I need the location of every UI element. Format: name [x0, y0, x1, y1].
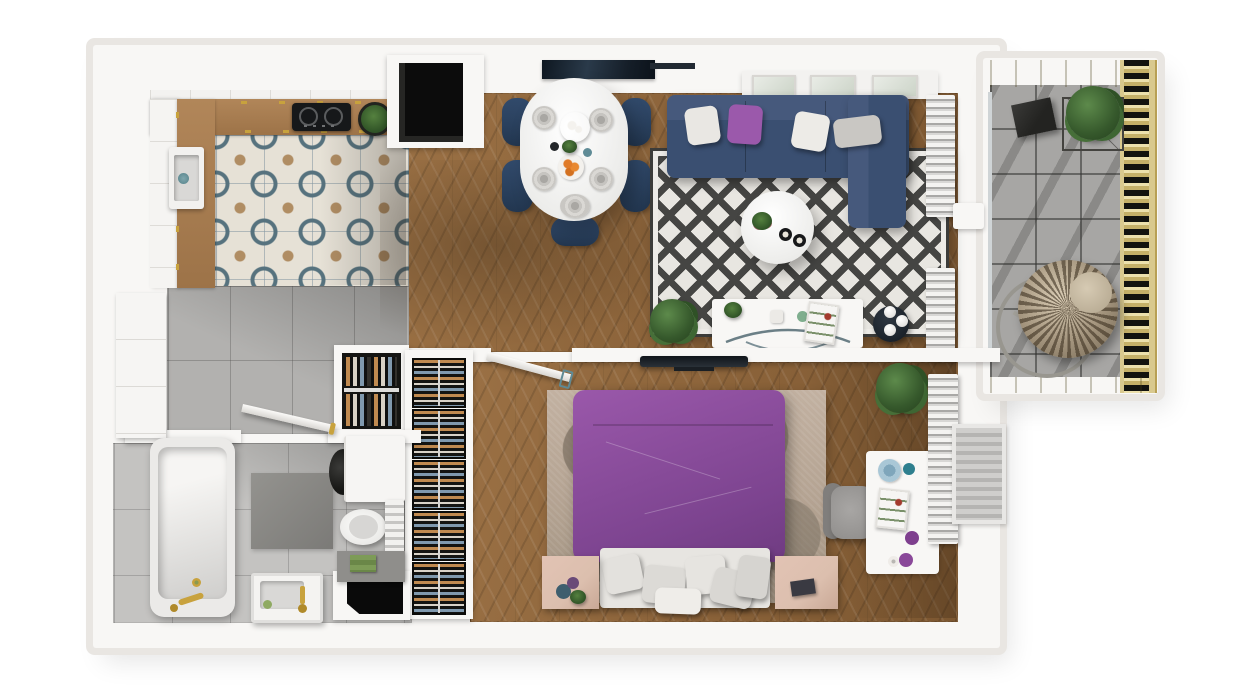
- bedroom-tv-stand: [674, 367, 714, 371]
- sofa-pillow-white: [790, 110, 831, 153]
- closet-clothes-lower: [346, 394, 397, 426]
- bed-pillow: [601, 552, 646, 595]
- kitchen-upper-cabinet-strip: [150, 90, 387, 99]
- sofa-pillow-white: [684, 105, 722, 146]
- fruit-bowl: [558, 154, 584, 180]
- bedroom-plant: [876, 363, 924, 413]
- entry-glass-panel: [542, 60, 655, 79]
- bathtub: [150, 438, 235, 617]
- bathtub-drain: [192, 578, 201, 587]
- desk-teal-dot: [903, 463, 915, 475]
- sideboard-magazine: [803, 301, 839, 345]
- wardrobe-rail: [438, 360, 440, 406]
- place-setting: [532, 167, 556, 191]
- wardrobe-bay: [412, 358, 466, 408]
- duvet-fold: [645, 487, 752, 515]
- closet-rail: [344, 388, 399, 392]
- desk-purple-dot: [899, 553, 913, 567]
- cooktop-burner: [324, 107, 343, 126]
- nightstand-decor-disc: [567, 577, 579, 589]
- table-cup: [583, 148, 592, 157]
- soap-dish: [263, 600, 272, 609]
- bed-pillow: [734, 554, 772, 600]
- toilet: [340, 509, 386, 545]
- sofa-pillow-gray: [832, 114, 882, 149]
- wardrobe-bay: [412, 511, 466, 561]
- place-setting: [589, 108, 613, 132]
- side-table-sphere: [884, 324, 896, 336]
- bedroom-wall-tv: [640, 356, 748, 367]
- gold-tray: [560, 112, 590, 142]
- washing-machine: [344, 436, 405, 502]
- cooktop-burner: [299, 107, 318, 126]
- balcony-glass-line: [988, 92, 992, 350]
- side-table-sphere: [896, 315, 908, 327]
- nightstand-plant: [570, 590, 586, 604]
- desk-cup: [888, 556, 899, 567]
- living-blinds-lower: [926, 268, 955, 360]
- living-blinds-upper: [926, 95, 955, 217]
- balcony-door-divider: [953, 203, 984, 229]
- wardrobe-rail: [438, 411, 440, 457]
- place-setting: [589, 167, 613, 191]
- coffee-table-flowers: [752, 212, 772, 230]
- kitchen-floor: [215, 135, 409, 288]
- sofa-chaise: [848, 95, 906, 228]
- sink-drain: [178, 173, 189, 184]
- green-towels: [350, 555, 376, 572]
- vanity-faucet: [300, 586, 305, 604]
- desk-purple-dot: [905, 531, 919, 545]
- hanging-egg-chair: [1018, 260, 1118, 358]
- entry-panel-frame: [650, 63, 695, 69]
- table-sprig: [562, 140, 577, 153]
- wardrobe-rail: [438, 513, 440, 559]
- side-table-sphere: [884, 306, 896, 318]
- bed-pillow: [655, 587, 702, 615]
- cooktop: [292, 103, 351, 131]
- sofa-pillow-purple: [727, 104, 764, 145]
- bath-mat: [251, 473, 333, 549]
- bathroom-tall-cabinet: [116, 293, 166, 438]
- place-setting: [560, 194, 590, 218]
- duvet-fold: [593, 424, 773, 426]
- wardrobe-bay: [412, 460, 466, 510]
- balcony-bottom-deck: [990, 377, 1153, 393]
- egg-chair-cushion: [1070, 272, 1112, 313]
- ventilation-shaft: [387, 55, 484, 148]
- coffee-table: [741, 191, 814, 264]
- bathtub-basin: [158, 447, 227, 599]
- bedroom-window: [952, 424, 1006, 524]
- balcony-railing-edge: [1149, 60, 1155, 393]
- duvet-fold: [606, 441, 720, 479]
- sideboard-knob: [770, 310, 783, 323]
- entrance-recess: [347, 579, 403, 614]
- dining-chair: [551, 217, 599, 246]
- cooktop-knobs: [304, 125, 338, 127]
- wardrobe-rail: [438, 462, 440, 508]
- balcony-tree: [1066, 86, 1120, 140]
- vanity-sink: [251, 573, 323, 623]
- partition-wall: [572, 348, 1000, 362]
- floor-plan-scene: [0, 0, 1244, 700]
- shaft-opening: [399, 63, 463, 142]
- toilet-seat: [349, 515, 378, 539]
- sideboard-plant: [724, 302, 742, 318]
- kitchen-sink: [169, 147, 204, 209]
- coffee-table-candle: [779, 228, 792, 241]
- bed-purple-duvet: [573, 390, 785, 562]
- desk-hat: [878, 459, 901, 482]
- bathtub-tap: [170, 604, 178, 612]
- coffee-table-candle: [793, 234, 806, 247]
- closet-clothes-upper: [346, 357, 397, 386]
- table-bottle: [550, 142, 559, 151]
- living-floor-plant: [650, 299, 694, 343]
- place-setting: [532, 106, 556, 130]
- wardrobe-bay: [412, 562, 466, 615]
- wardrobe-rail: [438, 564, 440, 613]
- desk-magazine: [875, 487, 910, 530]
- vanity-tap: [298, 604, 307, 613]
